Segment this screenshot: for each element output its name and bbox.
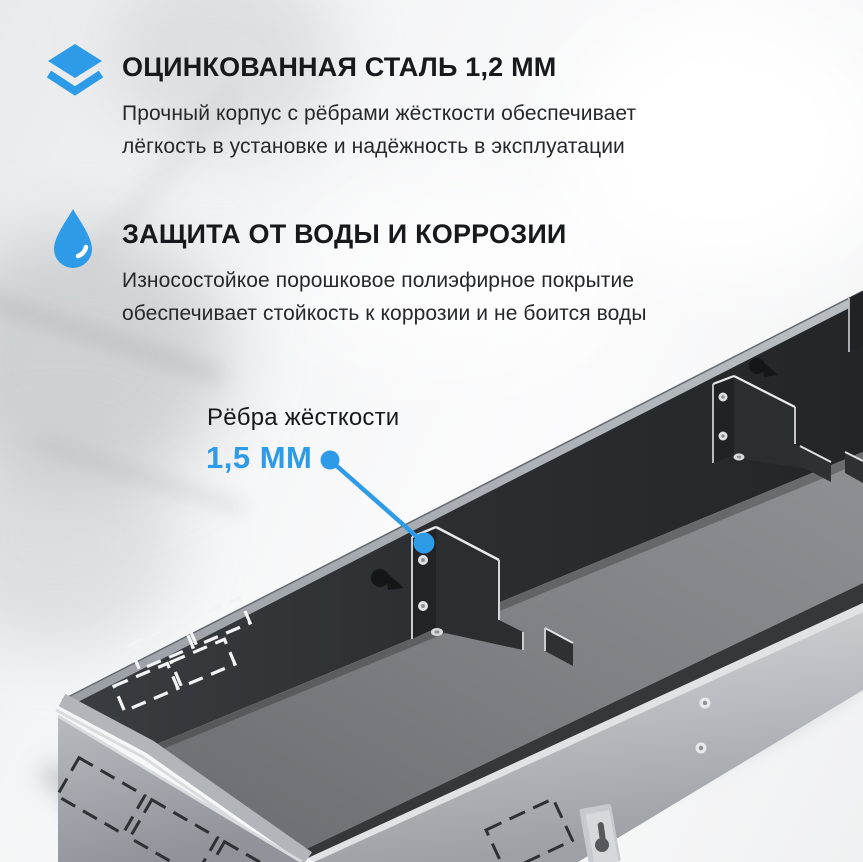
feature-description-line: обеспечивает стойкость к коррозии и не б… — [122, 297, 647, 330]
callout-label: Рёбра жёсткости — [207, 404, 399, 432]
feature-title: ОЦИНКОВАННАЯ СТАЛЬ 1,2 ММ — [122, 51, 636, 83]
water-drop-icon — [50, 207, 96, 269]
feature-description-line: лёгкость в установке и надёжность в эксп… — [122, 130, 636, 163]
callout-leader — [321, 451, 435, 554]
callout-dot-end — [414, 533, 435, 554]
feature-description-line: Прочный корпус с рёбрами жёсткости обесп… — [122, 97, 636, 130]
channel-product — [56, 291, 863, 862]
feature-description-line: Износостойкое порошковое полиэфирное пок… — [122, 264, 647, 297]
callout-leader-line — [330, 460, 424, 543]
feature-text: ОЦИНКОВАННАЯ СТАЛЬ 1,2 ММ Прочный корпус… — [122, 51, 636, 163]
feature-description: Износостойкое порошковое полиэфирное пок… — [122, 264, 647, 330]
feature-text: ЗАЩИТА ОТ ВОДЫ И КОРРОЗИИ Износостойкое … — [122, 218, 647, 330]
stiffening-rib-3-partial — [849, 291, 863, 352]
layers-icon — [46, 43, 104, 103]
callout-dot-start — [321, 451, 340, 470]
callout-value: 1,5 ММ — [206, 440, 312, 476]
feature-description: Прочный корпус с рёбрами жёсткости обесп… — [122, 97, 636, 163]
feature-title: ЗАЩИТА ОТ ВОДЫ И КОРРОЗИИ — [122, 218, 647, 250]
product-infographic: ОЦИНКОВАННАЯ СТАЛЬ 1,2 ММ Прочный корпус… — [0, 0, 863, 862]
